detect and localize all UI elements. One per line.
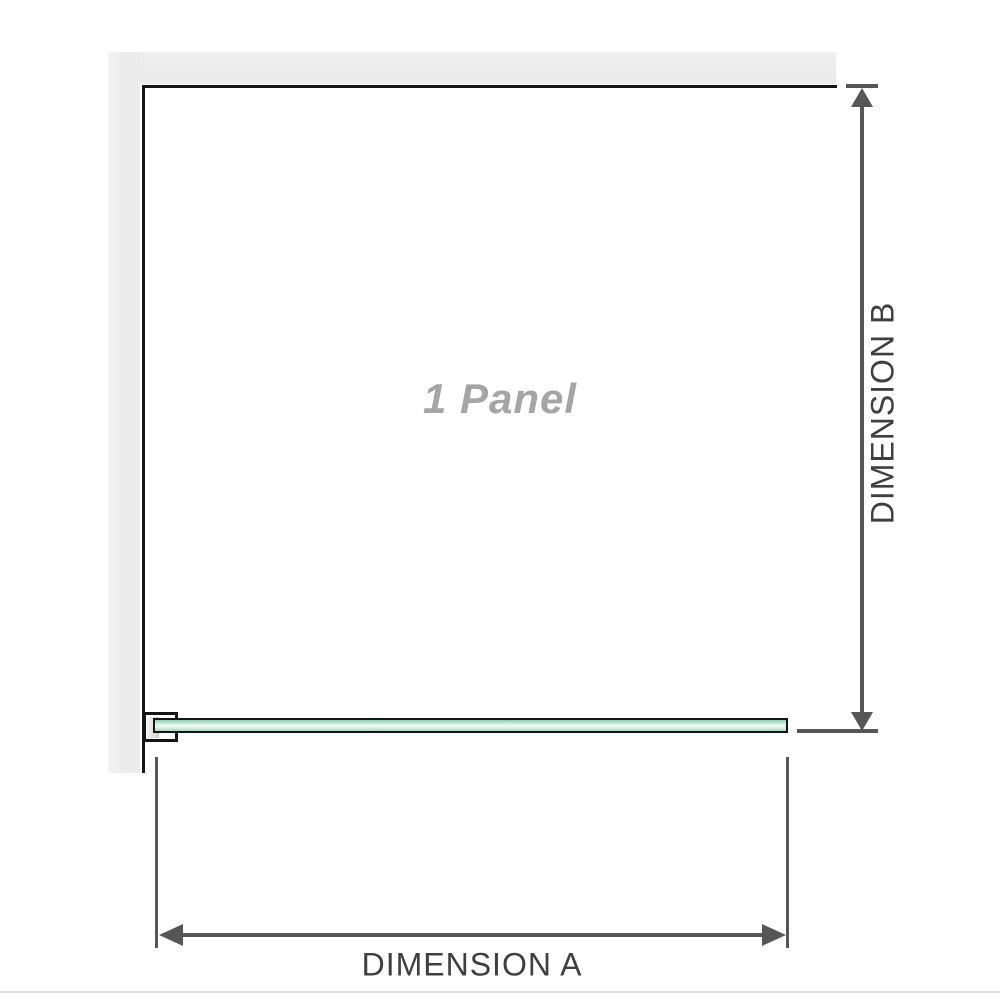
shower-panel-diagram: 1 Panel DIMENSION B DIMENSION A [0,0,1000,1000]
arrow-left-icon [159,924,183,946]
dimension-b-line [860,95,864,722]
wall-left-bar [108,52,140,773]
dimension-a-label: DIMENSION A [362,947,583,984]
arrow-down-icon [851,712,873,731]
dimension-a-line [168,933,780,937]
page-bottom-divider [0,991,1000,993]
dimension-a-extension-left [155,757,158,948]
dimension-a-extension-right [786,757,789,948]
glass-panel [153,718,788,733]
arrow-right-icon [762,924,786,946]
dimension-b-label: DIMENSION B [865,302,902,525]
wall-top-bar [108,52,836,84]
arrow-up-icon [851,88,873,107]
panel-label: 1 Panel [423,375,577,423]
